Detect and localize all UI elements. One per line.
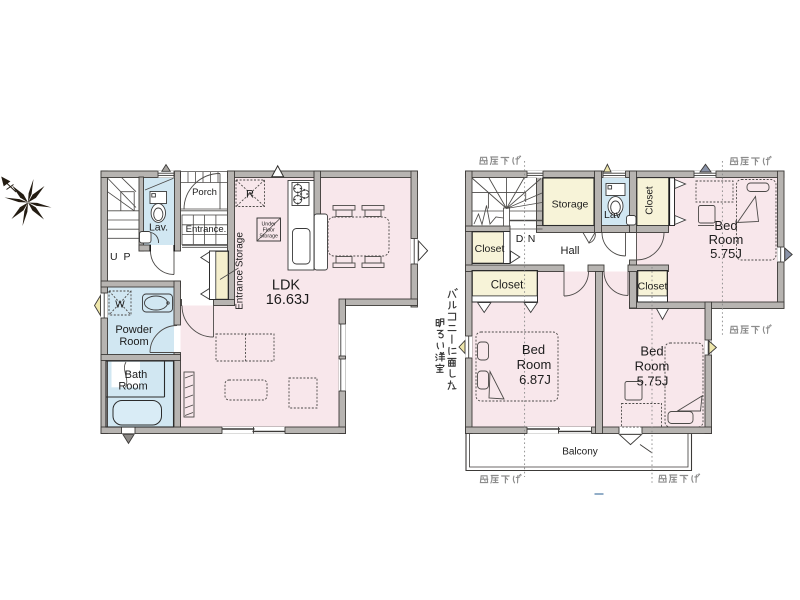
svg-text:5.75J: 5.75J	[637, 374, 669, 389]
svg-text:Lav.: Lav.	[149, 222, 168, 234]
svg-text:Bath: Bath	[125, 369, 148, 381]
svg-text:16.63J: 16.63J	[266, 292, 310, 308]
svg-text:Room: Room	[517, 357, 552, 372]
svg-text:6.87J: 6.87J	[519, 372, 551, 387]
svg-text:Entrance.: Entrance.	[186, 224, 227, 235]
svg-text:Room: Room	[119, 336, 148, 348]
svg-text:W: W	[115, 300, 125, 311]
svg-text:Storage: Storage	[259, 234, 278, 240]
svg-text:Storage: Storage	[552, 199, 589, 211]
svg-text:Powder: Powder	[115, 324, 153, 336]
svg-text:Bed: Bed	[640, 344, 663, 359]
svg-text:Closet: Closet	[645, 186, 656, 215]
svg-text:U P: U P	[110, 251, 132, 263]
svg-text:N: N	[528, 233, 536, 245]
svg-text:Entrance Storage: Entrance Storage	[235, 232, 246, 310]
svg-text:Room: Room	[118, 381, 147, 393]
svg-text:Lav: Lav	[604, 209, 622, 221]
svg-text:Room: Room	[635, 359, 670, 374]
svg-text:Closet: Closet	[475, 243, 505, 255]
svg-text:Bed: Bed	[714, 218, 737, 233]
svg-text:Bed: Bed	[522, 342, 545, 357]
svg-text:Closet: Closet	[491, 280, 524, 292]
svg-text:Hall: Hall	[561, 245, 580, 257]
svg-text:Room: Room	[709, 232, 744, 247]
svg-text:Porch: Porch	[192, 187, 217, 198]
svg-text:R: R	[246, 189, 254, 201]
svg-text:5.75J: 5.75J	[710, 246, 742, 261]
svg-text:Balcony: Balcony	[562, 447, 598, 458]
svg-text:D: D	[516, 233, 524, 245]
svg-text:Closet: Closet	[638, 281, 668, 293]
